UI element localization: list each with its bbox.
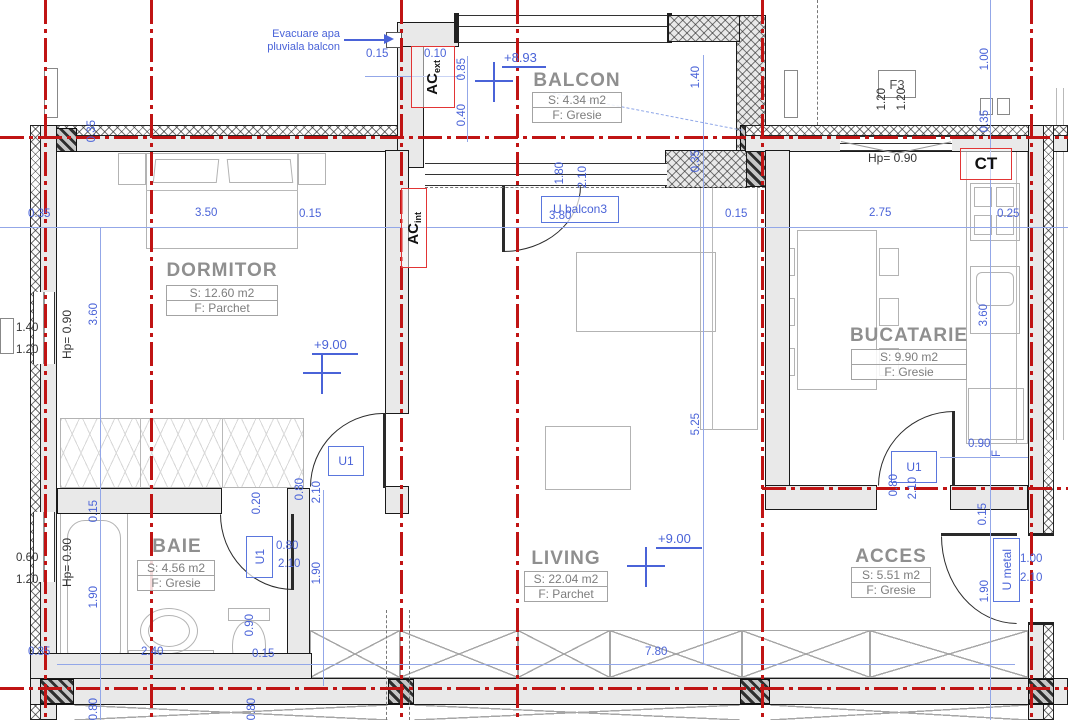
dim: 0.85	[456, 58, 468, 80]
room-floor: F: Parchet	[525, 587, 607, 601]
axis-vertical	[761, 0, 764, 720]
chair	[879, 248, 899, 276]
drain-note-line1: Evacuare apa	[250, 28, 340, 41]
axis-horizontal	[0, 136, 1068, 139]
dim: 0.90	[244, 614, 256, 636]
u1-label: U1	[338, 454, 353, 468]
room-area: S: 12.60 m2	[167, 286, 277, 301]
beam-x-section-below	[74, 705, 388, 720]
u-metal-tag: U metal	[993, 538, 1020, 602]
dim: 0.80	[88, 698, 100, 720]
nightstand-right	[298, 153, 326, 185]
dim: 1.20	[876, 88, 888, 110]
wardrobe	[60, 418, 304, 488]
dim: 2.75	[869, 207, 891, 219]
room-area: S: 9.90 m2	[852, 350, 966, 365]
floor-plan: +8.93 +9.00 +9.00 Evacuare apa pluviala …	[0, 0, 1068, 720]
balcony-door-glazing	[425, 163, 667, 186]
dim: 1.90	[88, 586, 100, 608]
u1-label: U1	[253, 549, 267, 564]
hp-note-left-upper: Hp= 0.90	[61, 310, 74, 359]
door-leaf-balcony	[502, 186, 505, 252]
dim: 3.60	[978, 304, 990, 326]
dim: 0.35	[979, 110, 991, 132]
kitchen-sink-bowl	[976, 272, 1014, 306]
dim: 0.80	[294, 478, 306, 500]
room-name-balcon: BALCON	[530, 70, 624, 92]
dim: 0.80	[888, 474, 900, 496]
wardrobe-divider	[140, 418, 141, 488]
dim: 1.90	[979, 580, 991, 602]
dim: 1.80	[554, 162, 566, 184]
level-mark-balcon	[502, 66, 546, 68]
level-value-living: +9.00	[658, 532, 691, 546]
sink-inner	[148, 615, 190, 647]
dim: 2.10	[907, 477, 919, 499]
u-metal-label: U metal	[1000, 549, 1014, 590]
level-mark-dormitor	[312, 353, 358, 355]
kitchen-appliance	[968, 388, 1024, 440]
level-mark-balcon	[493, 62, 495, 102]
wall-balcony-top-right	[668, 15, 740, 42]
dim: 1.40	[690, 66, 702, 88]
u1-label: U1	[906, 460, 921, 474]
pipe-box	[997, 98, 1010, 115]
door-leaf-entry	[941, 533, 1017, 536]
room-box-acces: S: 5.51 m2 F: Gresie	[851, 567, 931, 598]
room-floor: F: Gresie	[852, 583, 930, 597]
dim: 0.35	[28, 646, 50, 658]
dim: 1.00	[1020, 553, 1042, 565]
axis-vertical	[400, 0, 403, 720]
dim: 0.20	[251, 492, 263, 514]
room-box-balcon: S: 4.34 m2 F: Gresie	[532, 92, 622, 123]
bed-pillow	[227, 159, 294, 183]
level-mark-living	[645, 547, 647, 587]
level-mark-dormitor	[303, 372, 341, 374]
dim: 0.35	[28, 208, 50, 220]
wall-dormitor-right-low	[385, 486, 409, 514]
beam-x-section	[610, 630, 742, 678]
room-area: S: 4.34 m2	[533, 93, 621, 108]
dim: 0.15	[88, 500, 100, 522]
drain-note-line2: pluviala balcon	[250, 41, 340, 54]
beam-x-section	[518, 630, 610, 678]
wall-balcony-corner	[397, 22, 459, 47]
dim: 1.20	[896, 88, 908, 110]
door-leaf-kitchen	[952, 411, 955, 486]
axis-neighbour-dashed	[817, 0, 818, 125]
beam-x-section	[400, 630, 518, 678]
level-mark-living	[627, 565, 665, 567]
wall-bottom-main	[30, 678, 1068, 705]
room-box-dormitor: S: 12.60 m2 F: Parchet	[166, 285, 278, 316]
room-area: S: 5.51 m2	[852, 568, 930, 583]
dim: 3.80	[549, 210, 571, 222]
room-floor: F: Parchet	[167, 301, 277, 315]
drain-note: Evacuare apa pluviala balcon	[250, 28, 340, 54]
dim: 0.80	[276, 540, 298, 552]
ac-int-tag: ACint	[401, 188, 427, 268]
level-value-balcon: +8.93	[504, 51, 537, 65]
dim: 0.60	[16, 552, 38, 564]
dim: 2.10	[278, 558, 300, 570]
u1-tag-dormitor: U1	[328, 446, 364, 476]
level-mark-dormitor	[321, 354, 323, 394]
dim: 5.25	[690, 413, 702, 435]
dim: 1.40	[16, 322, 38, 334]
door-leaf-dormitor	[383, 413, 386, 488]
dim: 0.35	[690, 150, 702, 172]
ct-tag: CT	[960, 148, 1012, 180]
dim: 3.50	[195, 207, 217, 219]
railing-cap	[454, 13, 459, 43]
room-name-acces: ACCES	[850, 546, 932, 568]
room-floor: F: Gresie	[852, 365, 966, 379]
chair	[879, 298, 899, 326]
dim-line	[940, 457, 1028, 458]
dim: 0.35	[86, 120, 98, 142]
f-counter-label: F	[991, 450, 1003, 457]
dim: 7.80	[645, 646, 667, 658]
room-box-bucatarie: S: 9.90 m2 F: Gresie	[851, 349, 967, 380]
dim: 2.10	[1020, 572, 1042, 584]
dim-line	[0, 227, 1068, 228]
dim: 1.90	[311, 562, 323, 584]
dim: 0.15	[366, 48, 388, 60]
beam-x-section-below	[414, 705, 740, 720]
dim: 0.80	[246, 698, 258, 720]
dim: 2.10	[311, 481, 323, 503]
dim: 0.40	[456, 104, 468, 126]
exterior-unit	[0, 318, 14, 354]
overhead-dashed-line	[409, 610, 410, 720]
dim-line	[990, 0, 991, 720]
pipe-shaft	[784, 70, 798, 118]
dim: 0.15	[252, 648, 274, 660]
wall-baie-top-a	[57, 488, 222, 514]
side-table	[545, 426, 631, 490]
cooktop-burner	[996, 187, 1014, 207]
dim: 2.10	[577, 166, 589, 188]
hp-note-f3: Hp= 0.90	[868, 152, 917, 165]
ct-label: CT	[975, 154, 998, 174]
insulation-top-right	[745, 125, 1068, 136]
room-name-living: LIVING	[528, 548, 604, 570]
wall-kitchen-left	[765, 150, 790, 488]
coffee-table	[576, 252, 716, 332]
dim-line	[703, 55, 704, 665]
beam-x-section	[870, 630, 1028, 678]
room-box-living: S: 22.04 m2 F: Parchet	[524, 571, 608, 602]
room-area: S: 22.04 m2	[525, 572, 607, 587]
room-floor: F: Gresie	[533, 108, 621, 122]
room-name-baie: BAIE	[148, 536, 206, 558]
bed-pillow	[153, 159, 220, 183]
dim: 0.90	[968, 438, 990, 450]
dim: 0.15	[725, 208, 747, 220]
dim: 2.40	[141, 646, 163, 658]
balcony-railing	[458, 15, 670, 43]
dim-line	[100, 227, 101, 720]
dim-line	[57, 664, 1015, 665]
nightstand-left	[118, 153, 146, 185]
bed-blanket-line	[146, 190, 298, 191]
dim: 0.15	[977, 503, 989, 525]
dim: 1.20	[16, 344, 38, 356]
insulation-right	[1043, 125, 1054, 720]
dim: 0.15	[299, 208, 321, 220]
dim: 1.20	[16, 574, 38, 586]
overhead-dashed-line	[386, 610, 387, 720]
wardrobe-divider	[222, 418, 223, 488]
drain-arrow-head	[384, 34, 394, 44]
level-mark-balcon	[475, 80, 513, 82]
ac-ext-label: ACext	[424, 60, 442, 95]
overhead-dashed-line	[425, 187, 765, 188]
axis-horizontal	[0, 687, 1068, 690]
room-name-bucatarie: BUCATARIE	[846, 325, 972, 347]
axis-vertical	[150, 0, 153, 720]
wall-right-of-balcony-door	[665, 150, 747, 188]
dim: 0.10	[424, 48, 446, 60]
dim: 0.25	[997, 208, 1019, 220]
ac-int-label: ACint	[405, 212, 423, 245]
axis-vertical	[44, 0, 47, 720]
dim: 3.60	[88, 303, 100, 325]
room-name-dormitor: DORMITOR	[162, 260, 282, 282]
level-mark-living	[656, 547, 702, 549]
dim: 1.00	[979, 48, 991, 70]
level-value-dormitor: +9.00	[314, 338, 347, 352]
room-box-baie: S: 4.56 m2 F: Gresie	[137, 560, 215, 591]
drain-arrow-line	[344, 39, 386, 41]
room-area: S: 4.56 m2	[138, 561, 214, 576]
axis-vertical	[1030, 0, 1033, 720]
column	[740, 679, 770, 704]
dim-line	[323, 490, 324, 686]
u1-tag-baie: U1	[246, 536, 273, 578]
axis-vertical	[516, 0, 519, 720]
room-floor: F: Gresie	[138, 576, 214, 590]
hp-note-left-lower: Hp= 0.90	[61, 538, 74, 587]
